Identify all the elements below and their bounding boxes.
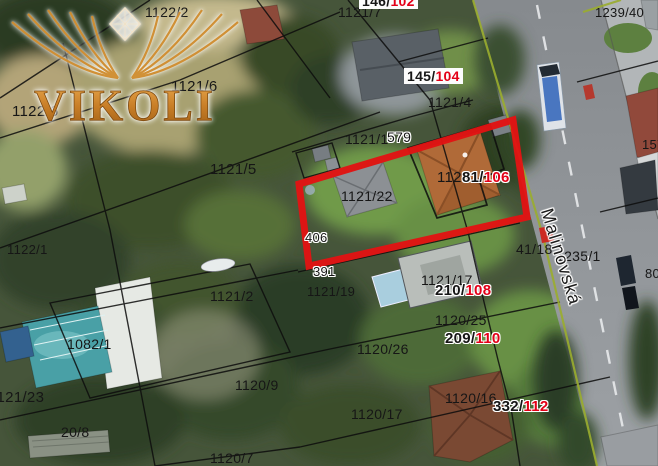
map-label-1122-6: 1122/6 — [12, 104, 59, 119]
label-part: 579 — [387, 129, 411, 145]
label-part: 104 — [435, 68, 459, 84]
map-label-210-108: 210/108 — [435, 283, 491, 298]
map-label-146-102: 146/102 — [360, 0, 417, 8]
map-label-1120-9: 1120/9 — [235, 378, 279, 392]
map-label-209-110: 209/110 — [445, 331, 501, 346]
map-label-1120-25: 1120/25 — [435, 313, 487, 327]
map-label-1082-1: 1082/1 — [67, 337, 112, 351]
map-label-80: 80 — [645, 267, 658, 280]
map-label-391: 391 — [313, 265, 336, 278]
map-label-20-8: 20/8 — [61, 425, 89, 439]
label-part: 332/ — [493, 398, 523, 415]
label-part: 1120/25 — [435, 312, 487, 328]
map-label-1121-1: 1121/1 — [345, 132, 389, 146]
label-part: 1121/2 — [210, 288, 254, 304]
label-part: 80 — [645, 266, 658, 281]
label-part: 81/ — [462, 169, 484, 186]
label-part: 145/ — [407, 68, 435, 84]
map-label-145-104: 145/104 — [405, 69, 462, 83]
label-part: 391 — [313, 264, 336, 279]
label-part: 406 — [305, 230, 328, 245]
map-label-1121-23: 1121/23 — [0, 390, 44, 405]
label-part: 1082/1 — [67, 336, 112, 352]
label-part: 209/ — [445, 330, 475, 347]
label-part: 1120/16 — [445, 390, 497, 406]
label-part: 1122/1 — [7, 242, 48, 257]
map-label-1239-40: 1239/40 — [595, 6, 644, 19]
label-part: 1122/6 — [12, 103, 59, 120]
label-part: 210/ — [435, 282, 465, 299]
map-label-112: 112 — [437, 170, 462, 185]
map-canvas[interactable]: 1122/21121/7146/1021121/6145/1041121/411… — [0, 0, 658, 466]
label-part: 1239/40 — [595, 5, 644, 20]
map-label-1120-16: 1120/16 — [445, 391, 497, 405]
label-part: 1120/9 — [235, 377, 279, 393]
label-part: 1120/17 — [351, 406, 403, 422]
map-label-1120-17: 1120/17 — [351, 407, 403, 421]
label-part: 112 — [437, 169, 462, 186]
label-part: 157 — [642, 137, 658, 152]
map-label-1121-5: 1121/5 — [210, 162, 257, 177]
label-part: 110 — [475, 330, 500, 347]
label-part: 1121/23 — [0, 389, 44, 406]
label-part: 1121/1 — [345, 131, 389, 147]
map-label-1122-1: 1122/1 — [7, 243, 48, 256]
label-part: 106 — [484, 169, 510, 186]
map-label-1120-7: 1120/7 — [210, 451, 254, 465]
label-part: 112 — [523, 398, 548, 415]
label-part: 1121/19 — [307, 284, 355, 299]
map-label-406: 406 — [305, 231, 328, 244]
label-part: 20/8 — [61, 424, 89, 440]
map-label-579: 579 — [387, 130, 411, 144]
map-label-332-112: 332/112 — [493, 399, 549, 414]
label-part: 1122/2 — [145, 4, 189, 20]
label-part: 1121/6 — [171, 78, 218, 95]
map-label-157: 157 — [642, 138, 658, 151]
map-label-1122-2: 1122/2 — [145, 5, 189, 19]
label-part: 1121/4 — [428, 94, 472, 110]
label-part: 108 — [465, 282, 491, 299]
label-part: 1121/5 — [210, 161, 257, 178]
map-label-1121-2: 1121/2 — [210, 289, 254, 303]
map-label-1121-4: 1121/4 — [428, 95, 472, 109]
map-label-1121-22: 1121/22 — [341, 189, 393, 203]
map-label-1121-19: 1121/19 — [307, 285, 355, 298]
label-part: 1120/7 — [210, 450, 254, 466]
map-label-1120-26: 1120/26 — [357, 342, 409, 356]
label-part: 1120/26 — [357, 341, 409, 357]
map-label-81-106: 81/106 — [462, 170, 510, 185]
label-part: 102 — [390, 0, 414, 9]
label-part: 146/ — [362, 0, 390, 9]
label-part: 1121/22 — [341, 188, 393, 204]
map-label-1121-6: 1121/6 — [171, 79, 218, 94]
